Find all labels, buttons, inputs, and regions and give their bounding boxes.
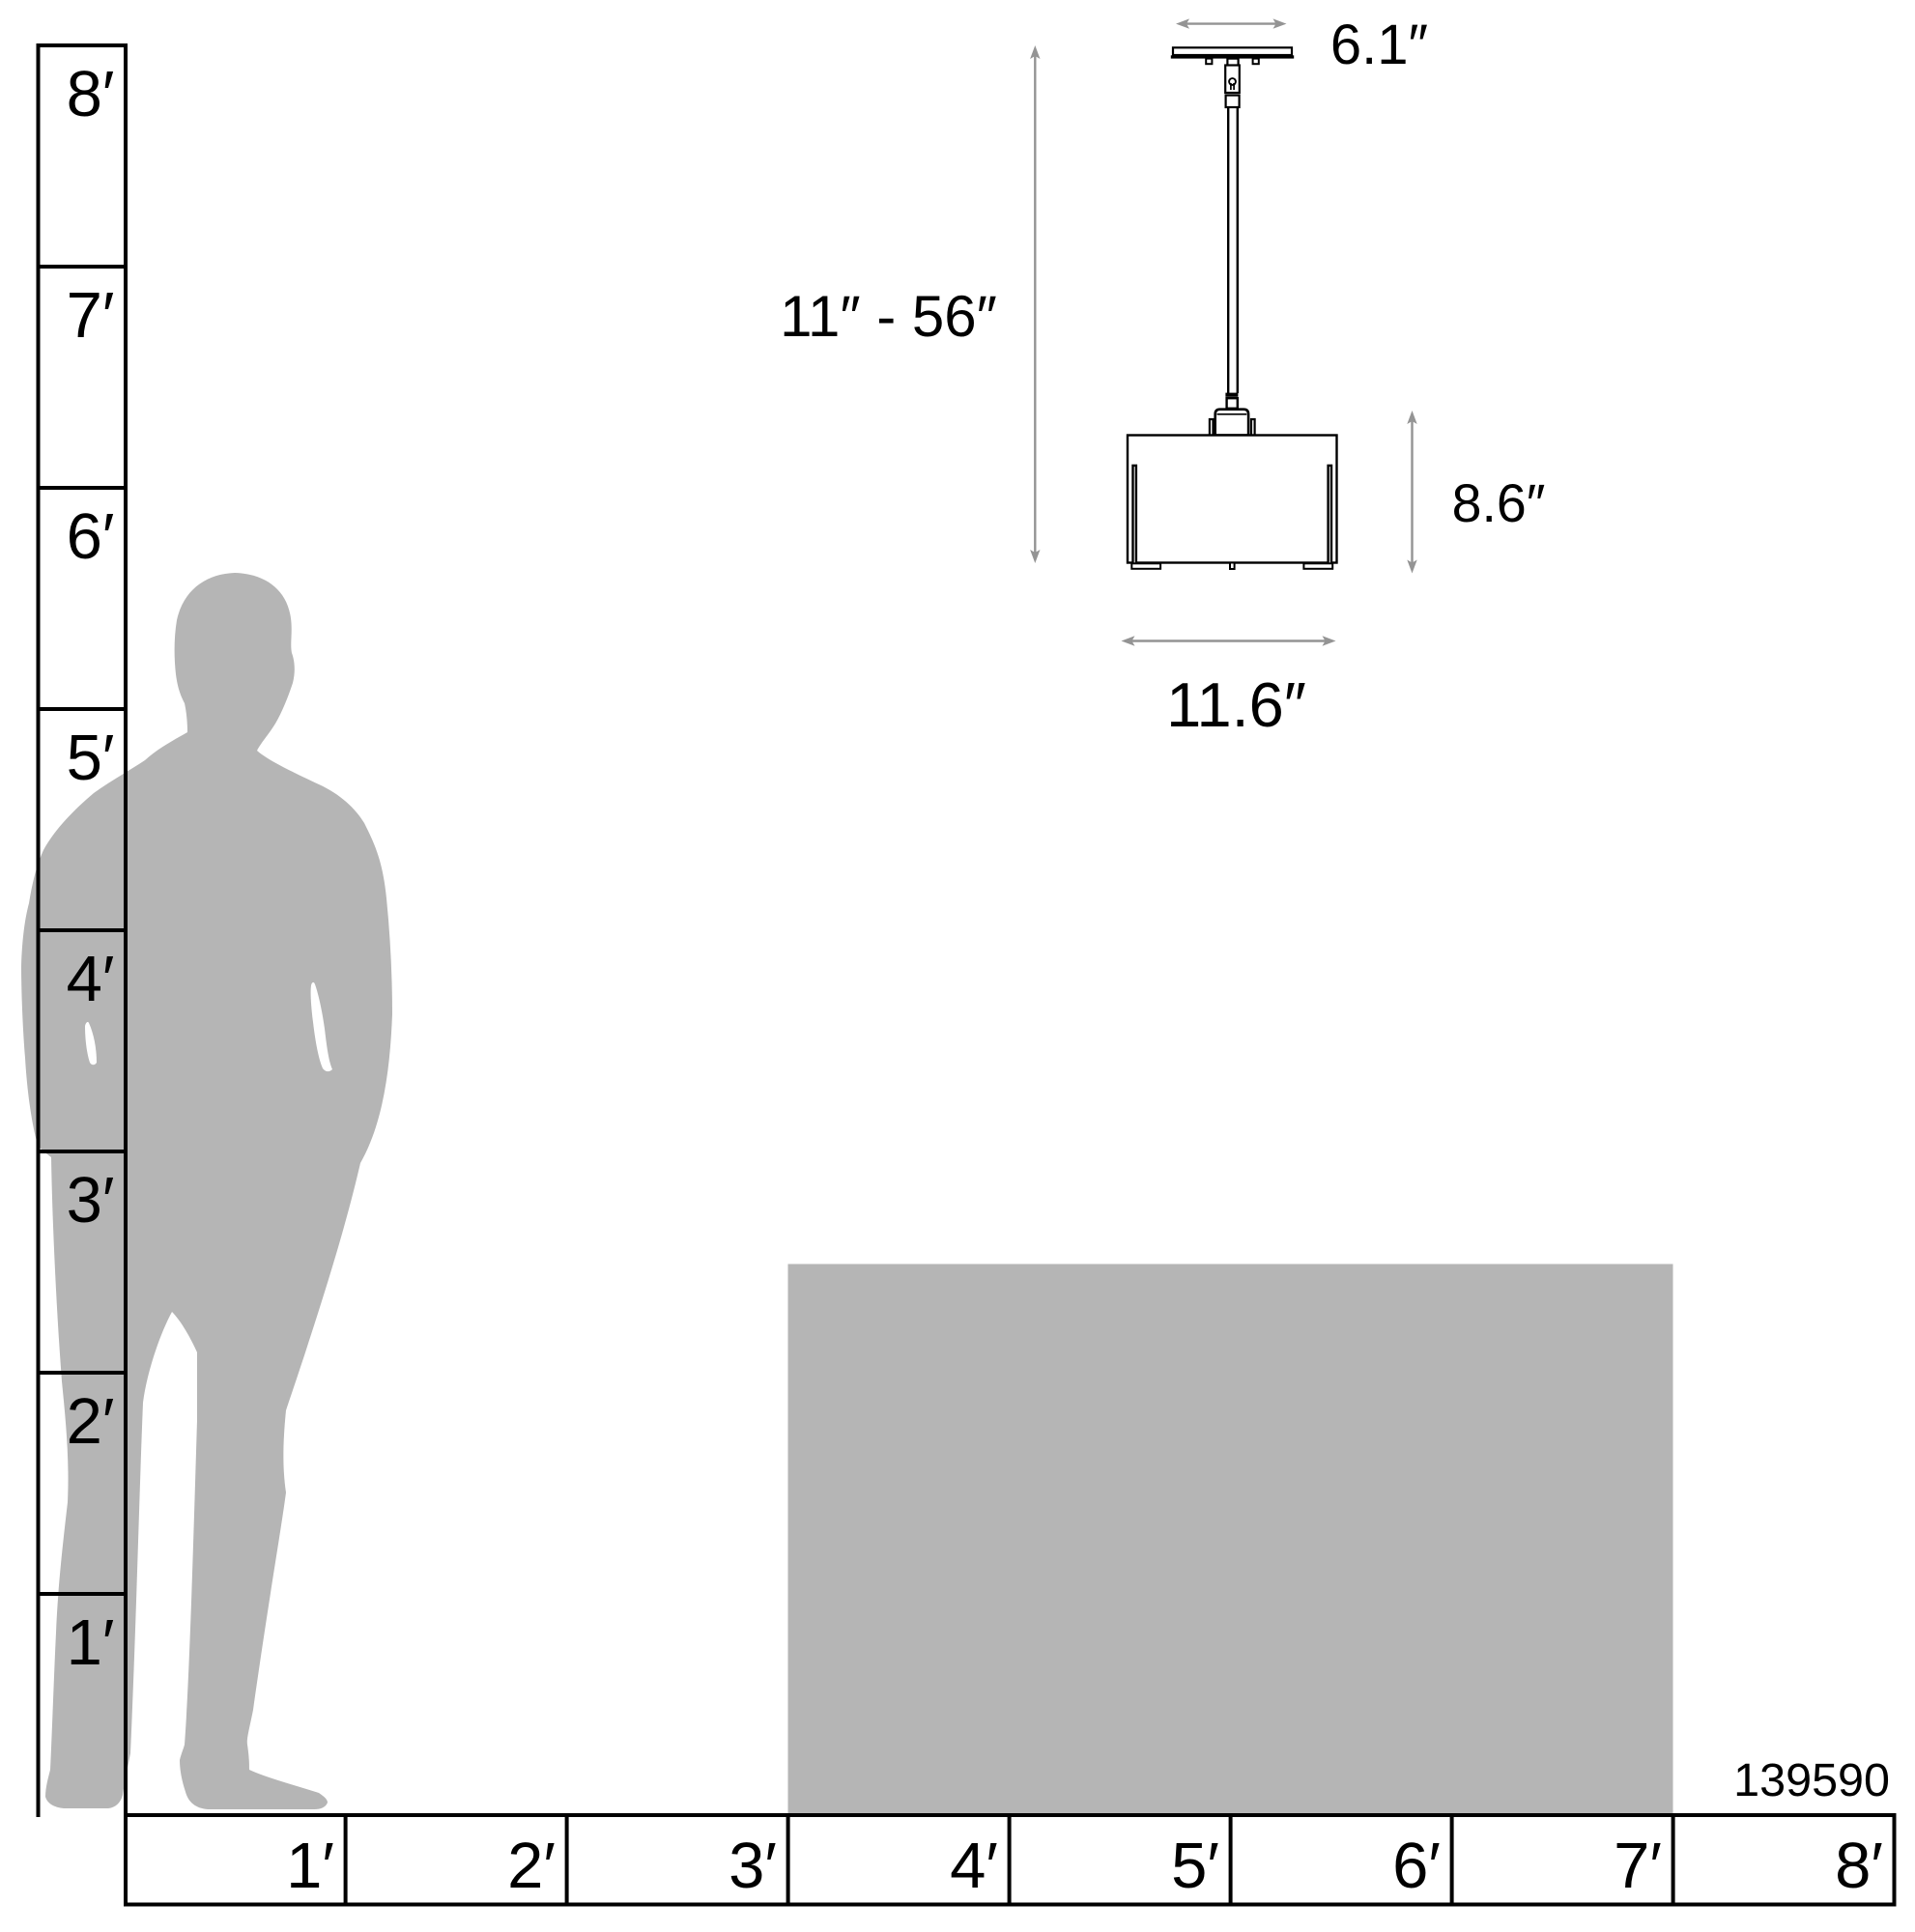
svg-text:3′: 3′ [729,1830,777,1902]
svg-text:3′: 3′ [67,1164,115,1236]
svg-text:4′: 4′ [950,1830,998,1902]
svg-text:1′: 1′ [286,1830,334,1902]
svg-text:2′: 2′ [67,1385,115,1458]
svg-text:8′: 8′ [1835,1830,1883,1902]
svg-text:6.1″: 6.1″ [1330,14,1428,76]
svg-text:8.6″: 8.6″ [1452,473,1546,533]
svg-text:5′: 5′ [1171,1830,1219,1902]
svg-text:4′: 4′ [67,943,115,1015]
svg-text:1′: 1′ [67,1606,115,1679]
svg-text:139590: 139590 [1733,1754,1890,1806]
svg-text:6′: 6′ [1392,1830,1441,1902]
svg-text:7′: 7′ [67,279,115,352]
svg-text:11.6″: 11.6″ [1166,669,1306,740]
svg-text:8′: 8′ [67,58,115,130]
svg-text:7′: 7′ [1614,1830,1662,1902]
svg-text:2′: 2′ [507,1830,556,1902]
svg-text:5′: 5′ [67,722,115,794]
svg-text:11″ - 56″: 11″ - 56″ [780,284,997,349]
svg-text:6′: 6′ [67,500,115,573]
